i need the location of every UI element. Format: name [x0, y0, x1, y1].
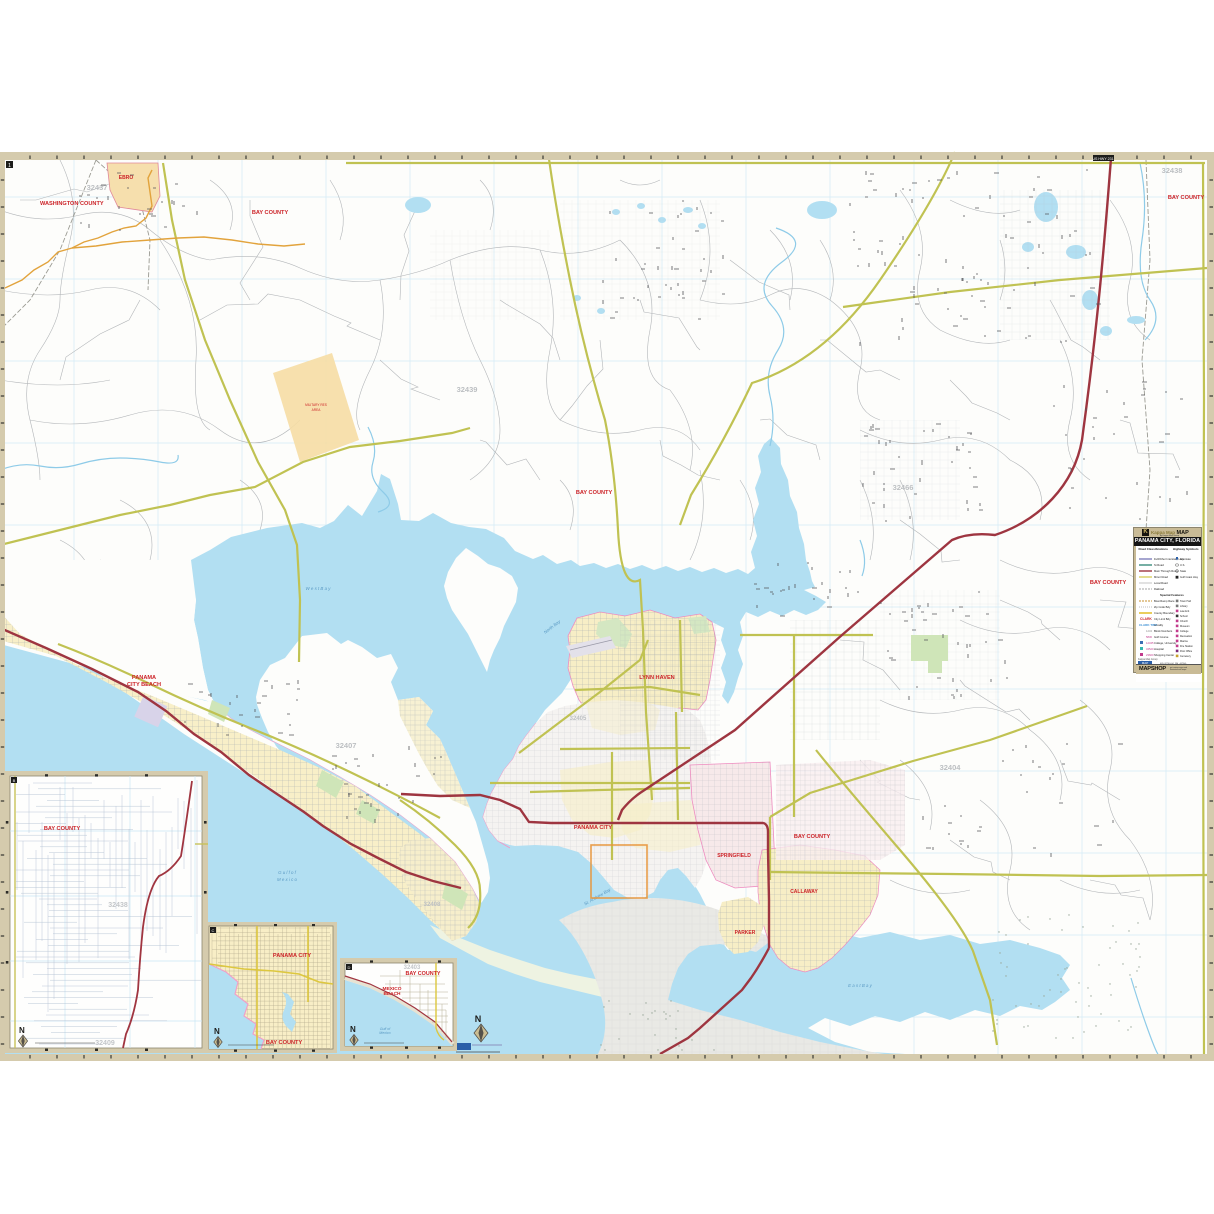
svg-text:Town Hall: Town Hall: [1180, 600, 1191, 603]
svg-text:Shopping Center: Shopping Center: [1154, 653, 1174, 657]
svg-text:Fire Station: Fire Station: [1180, 645, 1193, 648]
svg-text:B: B: [13, 778, 16, 783]
svg-text:Zip Code Bdy: Zip Code Bdy: [1154, 605, 1171, 609]
svg-text:34520: 34520: [1146, 647, 1154, 651]
svg-text:32409: 32409: [95, 1040, 115, 1047]
svg-text:Railroad: Railroad: [1154, 587, 1165, 591]
svg-text:College: College: [1180, 630, 1189, 633]
svg-text:BAY COUNTY: BAY COUNTY: [44, 826, 81, 832]
svg-text:32404: 32404: [940, 763, 962, 772]
svg-text:E a s t B a y: E a s t B a y: [848, 983, 872, 988]
svg-text:12345: 12345: [1146, 641, 1154, 645]
svg-text:College, University: College, University: [1154, 641, 1177, 645]
svg-text:Law Enf.: Law Enf.: [1180, 610, 1190, 613]
svg-text:BAY COUNTY: BAY COUNTY: [405, 971, 440, 977]
svg-text:N: N: [475, 1014, 482, 1024]
svg-text:32408: 32408: [424, 902, 441, 908]
svg-text:N: N: [350, 1025, 356, 1034]
svg-text:32405: 32405: [570, 716, 587, 722]
svg-text:Special Features: Special Features: [1160, 593, 1184, 597]
svg-text:Recreation: Recreation: [1180, 635, 1193, 638]
svg-text:32438: 32438: [108, 902, 128, 909]
svg-text:BAY COUNTY: BAY COUNTY: [794, 834, 831, 840]
svg-text:32438: 32438: [1162, 166, 1183, 175]
svg-text:School: School: [1180, 615, 1188, 618]
svg-text:BAY COUNTY: BAY COUNTY: [1168, 195, 1205, 201]
svg-text:CALLAWAY: CALLAWAY: [790, 889, 818, 895]
svg-text:32403: 32403: [404, 965, 421, 971]
svg-text:1: 1: [8, 163, 11, 169]
svg-text:PANAMA CITY: PANAMA CITY: [574, 825, 612, 831]
svg-text:Minor Road: Minor Road: [1154, 575, 1168, 579]
svg-text:BEACH: BEACH: [383, 991, 401, 997]
svg-text:W e s t B a y: W e s t B a y: [306, 586, 332, 591]
svg-text:C: C: [212, 928, 215, 933]
svg-text:D: D: [348, 965, 351, 970]
svg-text:BAY COUNTY: BAY COUNTY: [252, 210, 289, 216]
svg-text:City Limit Bdy: City Limit Bdy: [1154, 617, 1171, 621]
svg-text:Mexico: Mexico: [379, 1031, 390, 1035]
svg-text:CLARK: CLARK: [1140, 617, 1152, 621]
svg-text:EBRO: EBRO: [119, 175, 134, 181]
svg-text:N: N: [19, 1026, 25, 1035]
svg-text:23600: 23600: [1146, 653, 1154, 657]
svg-text:Interstate: Interstate: [1180, 557, 1191, 561]
svg-text:Library: Library: [1180, 605, 1188, 608]
svg-text:LYNN HAVEN: LYNN HAVEN: [639, 675, 674, 681]
svg-text:PANAMA: PANAMA: [132, 675, 156, 681]
svg-text:State: State: [1180, 569, 1187, 573]
svg-text:MILITARY RES: MILITARY RES: [305, 403, 327, 407]
svg-text:32466: 32466: [893, 483, 914, 492]
svg-text:Locality: Locality: [1154, 623, 1164, 627]
svg-text:Block Numbers: Block Numbers: [1154, 629, 1173, 633]
svg-text:Golf Course: Golf Course: [1154, 635, 1169, 639]
svg-text:Post Office: Post Office: [1180, 650, 1193, 653]
svg-text:Boat Ramp Race: Boat Ramp Race: [1154, 599, 1175, 603]
svg-text:County Boundary: County Boundary: [1154, 611, 1175, 615]
svg-text:PANAMA CITY: PANAMA CITY: [273, 953, 311, 959]
svg-text:Marina: Marina: [1180, 640, 1188, 643]
svg-text:32407: 32407: [336, 741, 357, 750]
svg-text:Museum: Museum: [1180, 625, 1190, 628]
svg-text:Gulf Coast Hwy: Gulf Coast Hwy: [1180, 575, 1199, 579]
svg-text:N: N: [214, 1027, 220, 1036]
svg-text:US HWY 231: US HWY 231: [1092, 157, 1113, 161]
svg-text:G u l f o f: G u l f o f: [278, 870, 297, 875]
svg-text:AREA: AREA: [312, 408, 322, 412]
svg-text:PARKER: PARKER: [735, 930, 756, 936]
svg-text:St Road: St Road: [1154, 563, 1164, 567]
svg-text:Hospital: Hospital: [1154, 647, 1164, 651]
svg-text:U.S.: U.S.: [1180, 563, 1185, 567]
svg-text:CITY BEACH: CITY BEACH: [127, 682, 161, 688]
svg-text:Local Road: Local Road: [1154, 581, 1168, 585]
svg-text:32437: 32437: [87, 183, 108, 192]
svg-text:1234: 1234: [1146, 629, 1152, 633]
svg-text:BAY COUNTY: BAY COUNTY: [576, 490, 613, 496]
svg-text:SPRINGFIELD: SPRINGFIELD: [717, 853, 751, 859]
svg-text:5830: 5830: [1146, 635, 1152, 639]
svg-text:M e x i c o: M e x i c o: [277, 877, 298, 882]
svg-text:BAY COUNTY: BAY COUNTY: [1090, 580, 1127, 586]
svg-text:Cemetery: Cemetery: [1180, 655, 1192, 658]
svg-text:WASHINGTON COUNTY: WASHINGTON COUNTY: [40, 201, 104, 207]
svg-text:Main Through Route: Main Through Route: [1154, 569, 1179, 573]
svg-text:Church: Church: [1180, 620, 1189, 623]
svg-text:32439: 32439: [457, 385, 478, 394]
